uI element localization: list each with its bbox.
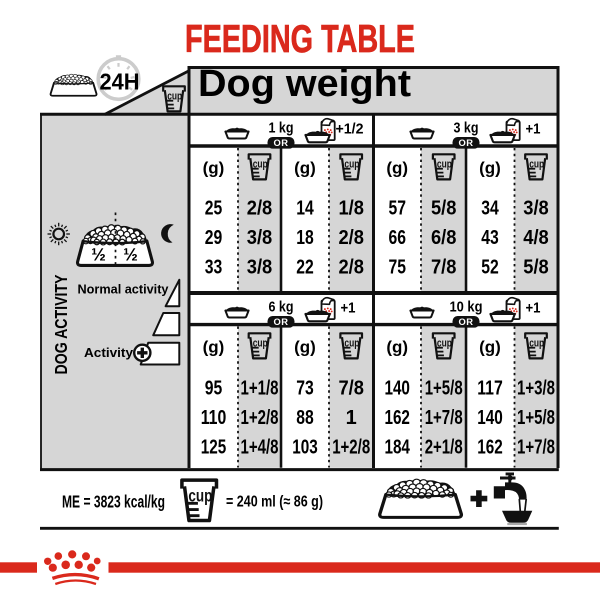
svg-text:2/8: 2/8 [247, 197, 273, 219]
svg-text:+1: +1 [341, 301, 356, 317]
svg-text:1: 1 [346, 407, 357, 429]
svg-text:18: 18 [296, 227, 314, 249]
svg-text:29: 29 [205, 227, 223, 249]
svg-text:1 kg: 1 kg [269, 121, 294, 137]
svg-text:73: 73 [296, 377, 314, 399]
svg-text:1+5/8: 1+5/8 [425, 377, 463, 399]
svg-text:7/8: 7/8 [431, 256, 457, 278]
svg-text:½: ½ [91, 245, 106, 265]
svg-text:1+5/8: 1+5/8 [517, 407, 555, 429]
svg-text:Activity: Activity [84, 345, 134, 360]
svg-text:(g): (g) [386, 159, 408, 178]
svg-text:+1/2: +1/2 [336, 122, 364, 138]
svg-text:1+1/8: 1+1/8 [241, 377, 279, 399]
svg-text:1+2/8: 1+2/8 [241, 407, 279, 429]
svg-text:66: 66 [388, 227, 406, 249]
svg-text:OR: OR [458, 316, 473, 327]
svg-text:2/8: 2/8 [338, 256, 364, 278]
svg-text:1/8: 1/8 [338, 197, 364, 219]
svg-text:140: 140 [384, 377, 410, 399]
svg-text:4/8: 4/8 [523, 227, 549, 249]
svg-text:ME = 3823 kcal/kg: ME = 3823 kcal/kg [62, 492, 165, 512]
svg-text:117: 117 [477, 377, 503, 399]
svg-text:22: 22 [296, 256, 314, 278]
svg-text:25: 25 [205, 197, 223, 219]
svg-text:OR: OR [273, 316, 288, 327]
svg-text:1+7/8: 1+7/8 [425, 407, 463, 429]
svg-text:FEEDING TABLE: FEEDING TABLE [185, 18, 415, 61]
svg-text:1+7/8: 1+7/8 [517, 436, 555, 458]
svg-text:10 kg: 10 kg [450, 300, 483, 316]
svg-text:(g): (g) [203, 338, 225, 357]
svg-text:6 kg: 6 kg [269, 300, 294, 316]
svg-text:3/8: 3/8 [247, 256, 273, 278]
svg-text:162: 162 [384, 407, 410, 429]
svg-text:(g): (g) [386, 338, 408, 357]
svg-text:+1: +1 [526, 122, 541, 138]
svg-text:½: ½ [123, 245, 138, 265]
svg-text:110: 110 [201, 407, 227, 429]
svg-text:Dog weight: Dog weight [198, 63, 411, 105]
svg-text:OR: OR [458, 137, 473, 148]
svg-text:184: 184 [384, 436, 410, 458]
svg-text:6/8: 6/8 [431, 227, 457, 249]
svg-text:2+1/8: 2+1/8 [425, 436, 463, 458]
svg-text:3/8: 3/8 [247, 227, 273, 249]
svg-text:DOG ACTIVITY: DOG ACTIVITY [51, 274, 71, 374]
svg-text:(g): (g) [203, 159, 225, 178]
svg-text:75: 75 [388, 256, 406, 278]
svg-text:34: 34 [481, 197, 499, 219]
svg-text:OR: OR [273, 137, 288, 148]
svg-text:57: 57 [388, 197, 406, 219]
svg-text:3 kg: 3 kg [454, 121, 479, 137]
svg-text:5/8: 5/8 [431, 197, 457, 219]
svg-text:1+3/8: 1+3/8 [517, 377, 555, 399]
svg-text:= 240 ml (≈ 86 g): = 240 ml (≈ 86 g) [226, 494, 323, 511]
svg-text:24H: 24H [100, 69, 140, 95]
svg-text:+1: +1 [526, 301, 541, 317]
svg-text:52: 52 [481, 256, 499, 278]
svg-text:(g): (g) [294, 338, 316, 357]
svg-text:1+2/8: 1+2/8 [332, 436, 370, 458]
svg-text:103: 103 [292, 436, 318, 458]
svg-text:140: 140 [477, 407, 503, 429]
svg-text:1+4/8: 1+4/8 [241, 436, 279, 458]
svg-text:2/8: 2/8 [338, 227, 364, 249]
svg-text:Normal activity: Normal activity [78, 281, 170, 296]
svg-text:(g): (g) [479, 159, 501, 178]
svg-text:43: 43 [481, 227, 499, 249]
svg-text:14: 14 [296, 197, 314, 219]
svg-text:162: 162 [477, 436, 503, 458]
svg-text:3/8: 3/8 [523, 197, 549, 219]
svg-text:(g): (g) [479, 338, 501, 357]
svg-text:(g): (g) [294, 159, 316, 178]
svg-text:7/8: 7/8 [338, 377, 364, 399]
svg-text:5/8: 5/8 [523, 256, 549, 278]
svg-text:95: 95 [205, 377, 223, 399]
svg-text:88: 88 [296, 407, 314, 429]
svg-text:33: 33 [205, 256, 223, 278]
svg-text:125: 125 [201, 436, 227, 458]
